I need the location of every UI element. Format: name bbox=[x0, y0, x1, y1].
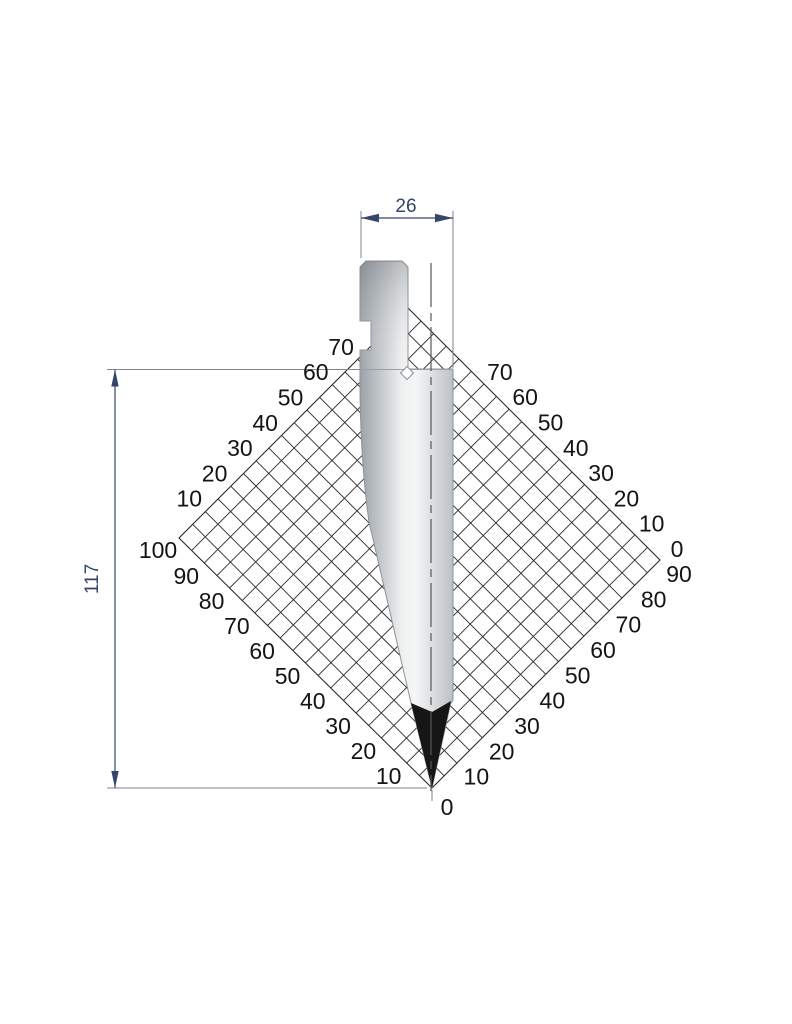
scale-upper-left-60: 60 bbox=[303, 359, 329, 385]
scale-lower-right-70: 70 bbox=[616, 612, 642, 638]
scale-upper-right-40: 40 bbox=[563, 435, 589, 461]
scale-lower-right-30: 30 bbox=[514, 713, 540, 739]
scale-lower-right-90: 90 bbox=[666, 561, 692, 587]
scale-lower-left-60: 60 bbox=[249, 638, 275, 664]
scale-upper-right-50: 50 bbox=[538, 410, 564, 436]
scale-bottom-corner-0: 0 bbox=[441, 794, 454, 820]
scale-upper-right-60: 60 bbox=[512, 384, 538, 410]
scale-lower-left-40: 40 bbox=[300, 688, 326, 714]
punch-tool bbox=[360, 261, 453, 791]
scale-upper-right-20: 20 bbox=[614, 485, 640, 511]
grid-line bbox=[169, 250, 792, 900]
scale-lower-left-50: 50 bbox=[275, 663, 301, 689]
scale-lower-left-10: 10 bbox=[376, 763, 402, 789]
scale-upper-right-10: 10 bbox=[639, 511, 665, 537]
scale-lower-left-80: 80 bbox=[199, 588, 225, 614]
grid-line bbox=[198, 250, 792, 900]
height-arrow-top bbox=[111, 370, 118, 387]
width-dimension: 26 bbox=[361, 196, 453, 222]
scale-lower-left-30: 30 bbox=[325, 713, 351, 739]
scale-lower-right-60: 60 bbox=[590, 637, 616, 663]
grid-line bbox=[223, 250, 792, 900]
scale-lower-right-10: 10 bbox=[464, 764, 490, 790]
scale-lower-right-40: 40 bbox=[540, 688, 566, 714]
height-dimension: 117 bbox=[82, 370, 119, 789]
punch-tang-shading bbox=[360, 261, 408, 369]
grid-line bbox=[194, 250, 792, 900]
width-dimension-label: 26 bbox=[395, 196, 416, 217]
scale-lower-right-80: 80 bbox=[641, 586, 667, 612]
scale-upper-left-10: 10 bbox=[177, 486, 203, 512]
grid-line bbox=[45, 250, 695, 900]
scale-lower-right-20: 20 bbox=[489, 738, 515, 764]
scale-lower-left-90: 90 bbox=[174, 563, 200, 589]
drawing-page: 26 117 908070605040302010100706050403020… bbox=[0, 0, 792, 1024]
scale-lower-left-20: 20 bbox=[351, 738, 377, 764]
scale-upper-left-50: 50 bbox=[278, 385, 304, 411]
scale-upper-left-70: 70 bbox=[328, 334, 354, 360]
scale-upper-left-40: 40 bbox=[252, 410, 278, 436]
grid-line bbox=[172, 250, 792, 900]
scale-lower-left-70: 70 bbox=[224, 613, 250, 639]
width-arrow-left bbox=[361, 214, 379, 222]
scale-left-corner-100: 100 bbox=[139, 537, 177, 563]
height-dimension-label: 117 bbox=[82, 564, 103, 594]
punch-diagram: 26 117 908070605040302010100706050403020… bbox=[0, 0, 792, 1024]
scale-upper-right-30: 30 bbox=[588, 460, 614, 486]
height-arrow-bottom bbox=[111, 771, 118, 788]
scale-upper-right-0: 0 bbox=[671, 536, 684, 562]
grid-line bbox=[144, 250, 792, 900]
width-arrow-right bbox=[435, 214, 453, 222]
scale-upper-right-70: 70 bbox=[487, 359, 513, 385]
grid-line bbox=[43, 250, 693, 900]
scale-lower-right-50: 50 bbox=[565, 662, 591, 688]
scale-upper-left-20: 20 bbox=[202, 460, 228, 486]
grid-line bbox=[245, 250, 792, 900]
scale-upper-left-30: 30 bbox=[227, 435, 253, 461]
grid-line bbox=[219, 250, 792, 900]
